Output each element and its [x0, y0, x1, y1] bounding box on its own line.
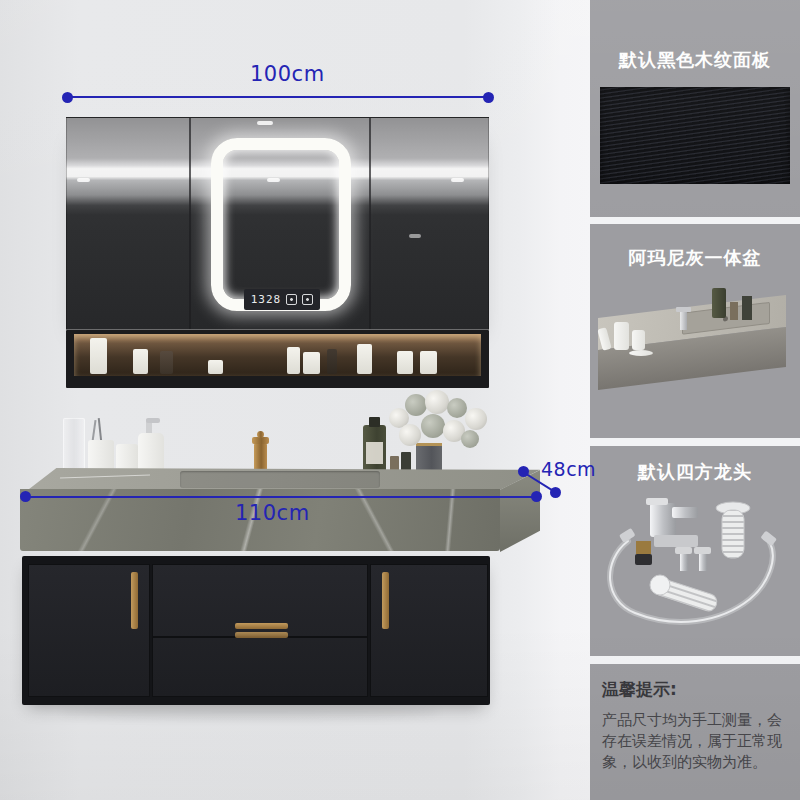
drawer-handle-bottom [235, 632, 288, 638]
faucet-kit-photo [600, 491, 790, 646]
green-bottle [712, 288, 726, 318]
toothbrush [98, 418, 102, 442]
dimension-label-counter-width: 110cm [235, 501, 310, 525]
notice-heading: 温馨提示: [602, 678, 677, 701]
dimension-dot-right [531, 491, 542, 502]
shelf-bottle [303, 352, 320, 374]
green-bottle-cap [369, 417, 380, 427]
mirror-door-seam [189, 118, 191, 329]
dimension-line-mirror-width [67, 96, 488, 98]
door-handle-reflection [451, 178, 464, 182]
dimension-dot-right [483, 92, 494, 103]
shelf-bottle [133, 349, 148, 374]
faucet-label: 默认四方龙头 [590, 460, 800, 484]
mirror-display: 1328 [244, 289, 320, 310]
faucet-spout [252, 437, 269, 444]
dimension-dot-bottom [550, 487, 561, 498]
jar [632, 330, 645, 350]
toothbrush [91, 420, 96, 442]
sidebar-section-basin: 阿玛尼灰一体盆 [590, 224, 800, 438]
wood-grain-swatch [600, 87, 790, 184]
drawer-handle-top [235, 623, 288, 629]
sidebar-section-faucet: 默认四方龙头 [590, 446, 800, 656]
product-image: 100cm 1328 [0, 0, 800, 800]
soap-dish [629, 350, 653, 356]
dimension-label-mirror-width: 100cm [250, 62, 325, 86]
bottle-label [366, 442, 383, 464]
flower-bouquet [385, 390, 495, 458]
dimension-line-counter-width [25, 496, 536, 498]
led-light-frame [211, 138, 351, 311]
glass-cup [63, 418, 85, 470]
mirror-cabinet: 1328 [66, 117, 489, 330]
door-handle-left [131, 572, 138, 629]
sidebar-section-panel: 默认黑色木纹面板 [590, 0, 800, 217]
shelf-bottle [160, 351, 173, 374]
shelf-bottle [90, 338, 107, 374]
dispenser-nozzle [146, 418, 160, 423]
small-bottle [742, 296, 752, 320]
faucet-knob [257, 431, 264, 438]
countertop-surface [20, 468, 540, 490]
lock-nut [635, 554, 652, 565]
shelf-bottle [420, 351, 437, 374]
shelf-bottle [327, 349, 337, 374]
mirror-door-seam [369, 118, 371, 329]
mirror-clock: 1328 [251, 293, 282, 306]
door-handle-right [382, 572, 389, 629]
shelf-bottle [357, 344, 372, 374]
brass-thread [636, 541, 651, 554]
vanity-cabinet [22, 556, 490, 705]
cabinet-shadow [60, 706, 440, 718]
sidebar-section-notice: 温馨提示: 产品尺寸均为手工测量，会存在误差情况，属于正常现象，以收到的实物为准… [590, 664, 800, 800]
panel-label: 默认黑色木纹面板 [590, 48, 800, 72]
shelf-interior [74, 334, 481, 376]
basin-label: 阿玛尼灰一体盆 [590, 246, 800, 270]
defog-icon [286, 294, 297, 305]
basin-photo [596, 284, 792, 434]
shelf-bottle [208, 360, 223, 374]
chrome-faucet-spout [676, 307, 691, 312]
ceiling-light-reflection [257, 121, 273, 125]
dimension-label-counter-depth: 48cm [541, 458, 596, 480]
faucet-handle [646, 498, 668, 505]
open-shelf [66, 330, 489, 388]
pump-bottle [614, 322, 629, 350]
sidebar: 默认黑色木纹面板 阿玛尼灰一体盆 [590, 0, 800, 800]
dimension-dot-left [62, 92, 73, 103]
dimension-dot-top [518, 466, 529, 477]
drain-pipe [722, 510, 744, 558]
door-handle-reflection [77, 178, 90, 182]
faucet-body [650, 503, 676, 537]
door-handle-reflection [409, 234, 421, 238]
dimension-dot-left [20, 491, 31, 502]
light-control-icon [302, 294, 313, 305]
hose-fitting [760, 531, 777, 547]
hose-fitting [619, 528, 636, 543]
drain-elbow [650, 575, 670, 595]
chrome-faucet [680, 310, 687, 330]
angle-valve [675, 547, 692, 571]
faucet-spout [672, 507, 698, 518]
cabinet-drawer-front [152, 564, 368, 697]
shelf-bottle [397, 351, 413, 374]
shelf-bottle [287, 347, 300, 374]
angle-valve [694, 547, 711, 571]
notice-body: 产品尺寸均为手工测量，会存在误差情况，属于正常现象，以收到的实物为准。 [602, 710, 788, 773]
basin-recess [180, 471, 380, 488]
small-bottle [730, 302, 738, 320]
faucet-base [654, 535, 698, 547]
